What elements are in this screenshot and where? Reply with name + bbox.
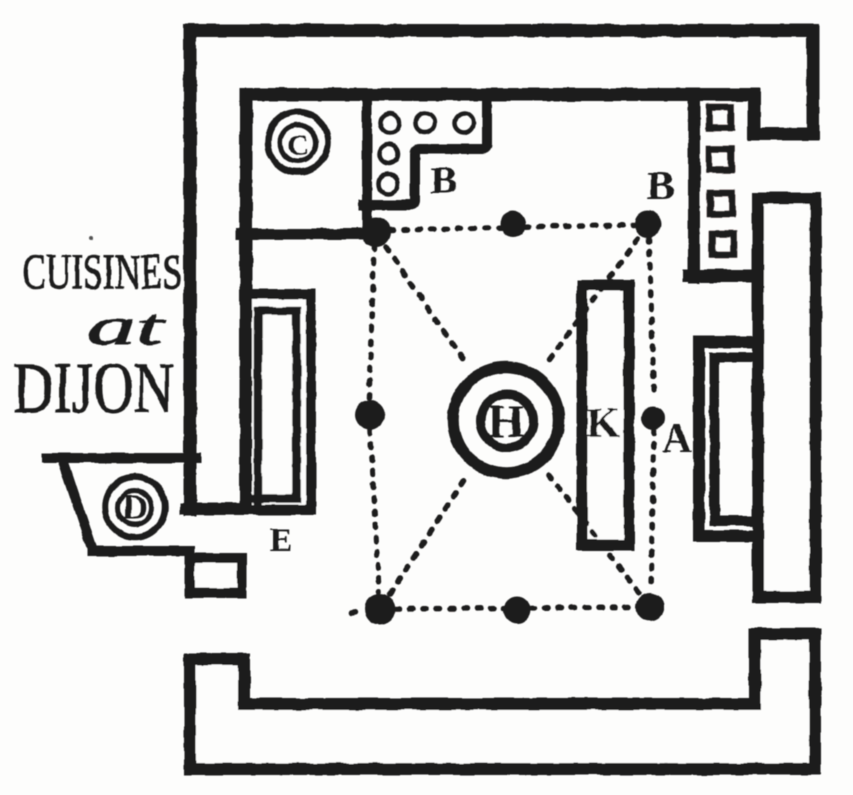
svg-text:A: A bbox=[662, 416, 693, 462]
svg-text:DIJON: DIJON bbox=[13, 348, 174, 428]
svg-text:K: K bbox=[586, 401, 620, 447]
svg-text:E: E bbox=[270, 522, 293, 559]
svg-text:CUISINES: CUISINES bbox=[22, 243, 182, 299]
svg-text:B: B bbox=[431, 160, 458, 202]
svg-text:H: H bbox=[488, 396, 525, 448]
svg-text:D: D bbox=[122, 487, 148, 527]
svg-text:B: B bbox=[647, 163, 676, 208]
svg-text:C: C bbox=[287, 129, 309, 162]
